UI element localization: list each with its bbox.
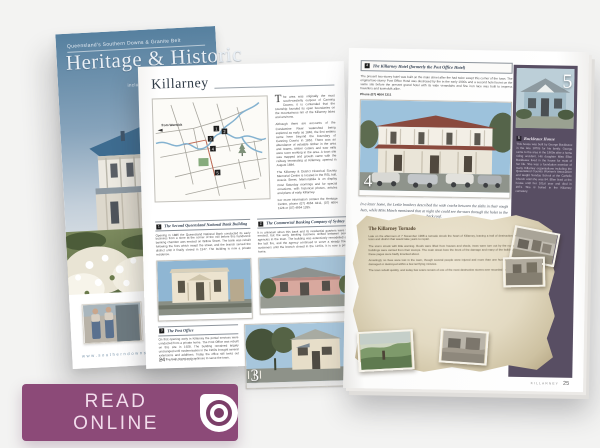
section-4-heading-row: 4 The Killarney Hotel (formerly the Post… (361, 60, 513, 74)
section-5-heading: Buckleaux House (524, 136, 555, 142)
left-page-footer: 24 KILLARNEY (159, 356, 198, 363)
intro-paragraph-4: For more information contact the Heritag… (278, 196, 338, 210)
section-1: 1 The Second Queensland National Bank Bu… (155, 219, 253, 321)
section-2-heading-row: 2 The Commercial Banking Company of Sydn… (257, 216, 350, 229)
issuu-logo-icon (200, 394, 238, 432)
map-from-warwick-label: from Warwick (161, 123, 182, 128)
bank-building-photo (156, 258, 253, 322)
intro-paragraph-3: The Killarney & District Historical Soci… (277, 169, 338, 195)
killarney-hotel-photo: 4 (358, 99, 512, 199)
page-number-25: 25 (563, 381, 569, 387)
town-map: 1 2 3 4 5 from Warwick (152, 95, 271, 202)
section-2-number-badge: 2 (258, 221, 263, 226)
left-page: Killarney (138, 61, 352, 369)
page-background: Queensland's Southern Downs & Granite Be… (0, 0, 600, 448)
section-5-number-badge: 5 (516, 136, 521, 141)
section-5-heading-row: 5 Buckleaux House (516, 136, 572, 142)
cbc-sydney-photo (258, 255, 353, 315)
photo-numeral-5: 5 (562, 71, 572, 94)
right-page: 4 The Killarney Hotel (formerly the Post… (343, 48, 589, 392)
intro-paragraph-2: Although there are accounts of the Conda… (275, 121, 336, 168)
section-1-body: Opening in 1886 the Queensland National … (155, 231, 251, 257)
section-4-body: The present two-storey hotel was built o… (360, 74, 512, 93)
page-number-24: 24 (159, 357, 165, 363)
cover-strip-photo-people (82, 301, 144, 344)
section-3-heading: The Post Office (167, 328, 193, 333)
intro-paragraph-1: The area was originally the most south-w… (275, 93, 336, 119)
tornado-paragraph-1: Late on the afternoon of 7 November 1968… (369, 234, 529, 242)
read-online-label: READ ONLINE (48, 391, 184, 435)
section-5-body: This house was built by George Buckleaux… (515, 143, 572, 195)
section-3-number-badge: 3 (159, 329, 164, 334)
photo-numeral-4: 4 (363, 171, 372, 191)
read-online-button[interactable]: READ ONLINE (22, 384, 238, 441)
section-4-heading: The Killarney Hotel (formerly the Post O… (373, 63, 466, 70)
section-1-heading-row: 1 The Second Queensland National Bank Bu… (155, 219, 250, 232)
tornado-bw-photo-3 (503, 257, 546, 288)
page-title-text: Killarney (151, 76, 209, 94)
page-title-killarney: Killarney (151, 72, 334, 93)
town-map-drawing: 1 2 3 4 5 from Warwick (153, 96, 270, 201)
section-2-heading: The Commercial Banking Company of Sydney (266, 219, 345, 226)
section-4-number-badge: 4 (365, 63, 370, 68)
post-office-photo: 3 (244, 321, 348, 389)
section-2: 2 The Commercial Banking Company of Sydn… (257, 216, 353, 318)
section-1-number-badge: 1 (156, 224, 161, 229)
map-direction-arrow (158, 129, 163, 132)
tornado-paragraph-2: The storm struck with little warning. Ro… (369, 244, 529, 256)
section-3-heading-row: 3 The Post Office (158, 324, 238, 336)
right-footer-label: KILLARNEY (531, 381, 559, 385)
tornado-postcard-photo (357, 329, 415, 372)
buckleaux-house-photo: 5 (516, 68, 575, 134)
left-footer-label: KILLARNEY (169, 357, 197, 362)
section-4: 4 The Killarney Hotel (formerly the Post… (358, 60, 513, 222)
section-4-phone: Phone (07) 4664 1311 (360, 92, 512, 99)
section-1-heading: The Second Queensland National Bank Buil… (164, 222, 247, 229)
title-rule (215, 84, 335, 88)
section-2-body: It is unknown when this bank and its res… (257, 229, 351, 255)
photo-numeral-3: 3 (250, 366, 259, 386)
tornado-bw-photo-1 (439, 328, 489, 365)
map-tree-symbol (238, 143, 246, 156)
intro-column: The area was originally the most south-w… (275, 93, 338, 213)
right-page-footer: KILLARNEY 25 (531, 380, 570, 387)
